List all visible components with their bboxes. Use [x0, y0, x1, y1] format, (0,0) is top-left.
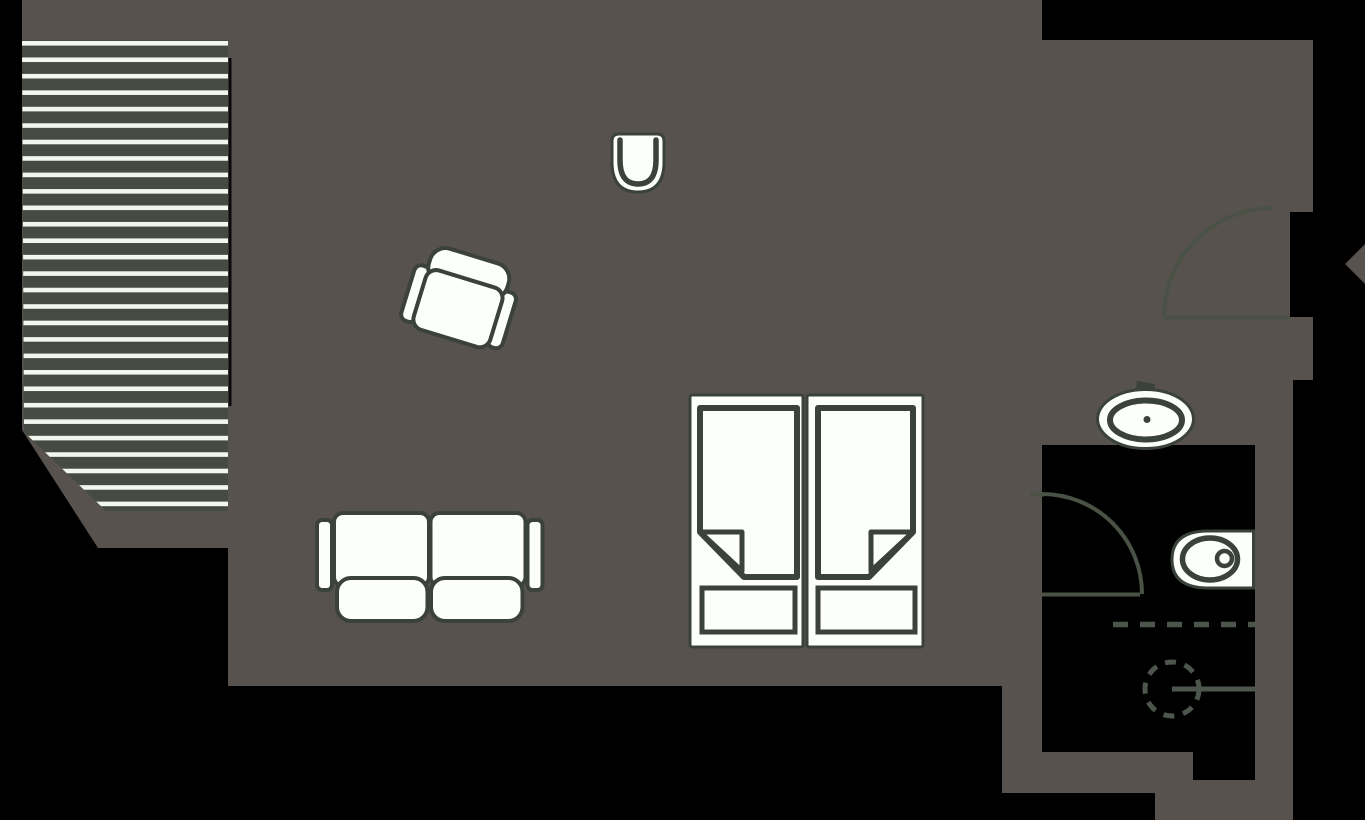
tub-chair: [612, 134, 664, 192]
deck-wall-line: [229, 58, 232, 406]
deck-terrace: [22, 40, 228, 511]
sofa: [317, 513, 543, 621]
bathroom-floor: [1042, 445, 1255, 780]
toilet: [1172, 531, 1254, 588]
pointer-diamond: [1345, 240, 1365, 288]
floor-plan-svg: [0, 0, 1365, 820]
floor-plan-stage: [0, 0, 1365, 820]
double-bed: [690, 395, 923, 647]
